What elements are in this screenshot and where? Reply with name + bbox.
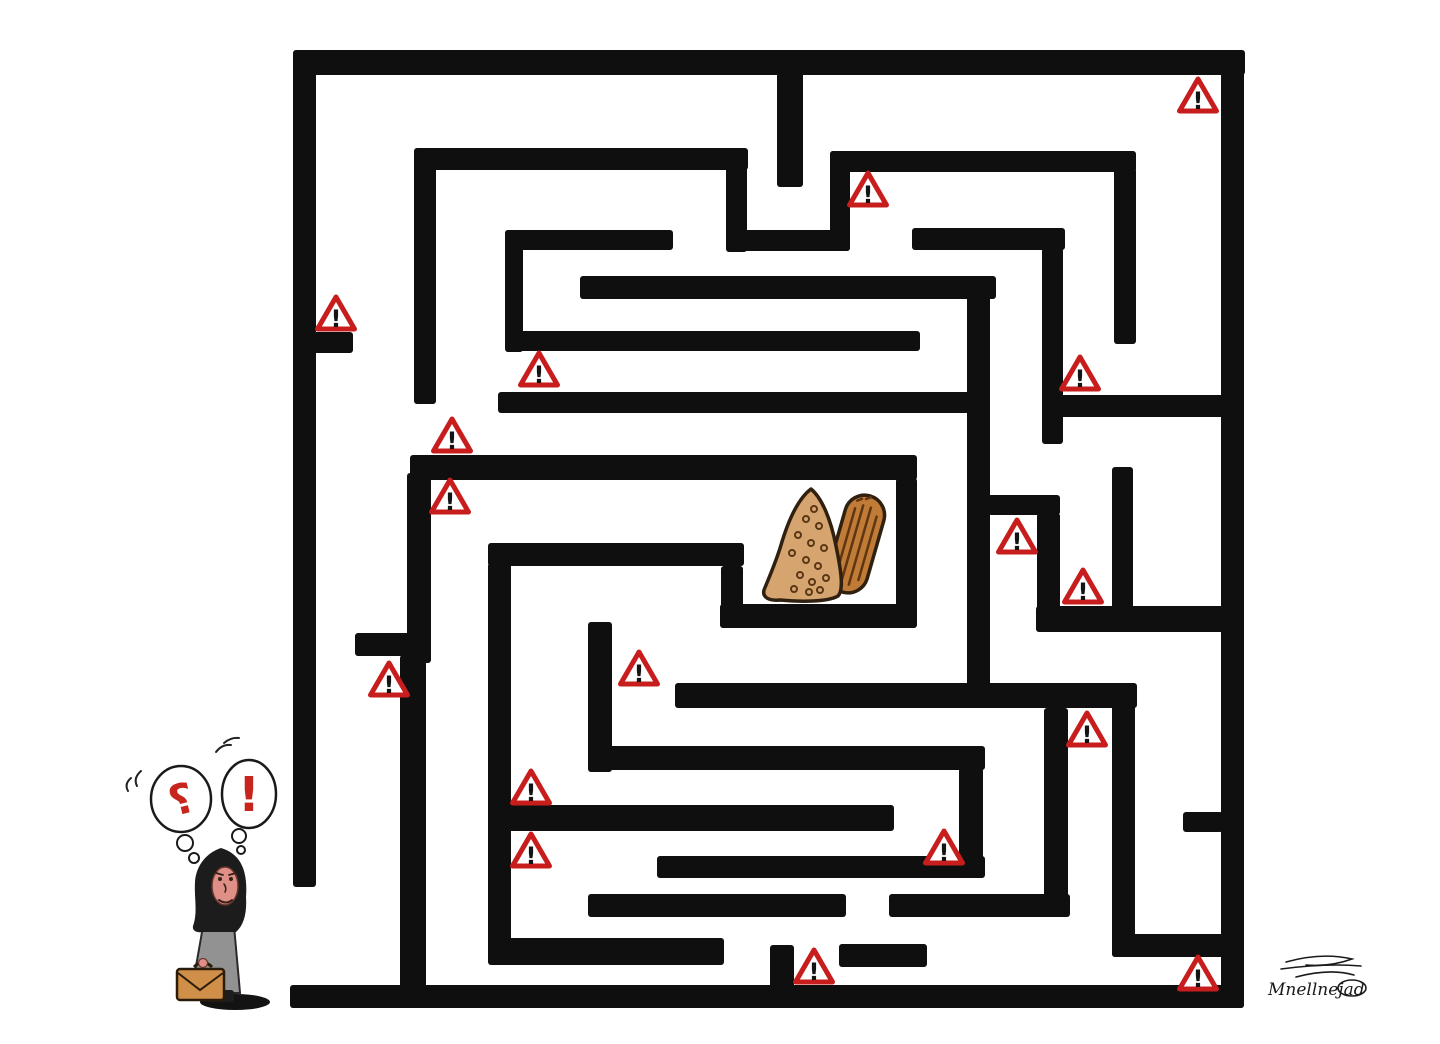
warning-triangle-icon: !	[850, 173, 887, 209]
left-loaf	[764, 489, 842, 601]
overlay-graphics: !!!!!!!!!!!!!!!!!	[0, 0, 1440, 1044]
warning-triangle-icon: !	[371, 663, 408, 699]
svg-text:!: !	[863, 181, 874, 209]
artist-signature: Mnellnejad	[1267, 956, 1366, 1000]
signature-text: Mnellnejad	[1267, 980, 1365, 1000]
bread-illustration	[764, 489, 890, 601]
warning-triangle-icon: !	[318, 297, 355, 333]
thought-bubble-exclamation: !	[222, 760, 276, 828]
warning-triangle-icon: !	[1180, 79, 1217, 115]
svg-text:!: !	[1082, 721, 1093, 749]
warning-triangle-icon: !	[513, 834, 550, 870]
cartoon-scene: !!!!!!!!!!!!!!!!!	[0, 0, 1440, 1044]
thought-bubble-question: ؟	[151, 766, 211, 832]
warning-triangle-icon: !	[796, 950, 833, 986]
warning-triangle-icon: !	[926, 831, 963, 867]
warning-triangles-layer: !!!!!!!!!!!!!!!!!	[318, 79, 1217, 993]
svg-text:!: !	[809, 958, 820, 986]
svg-text:!: !	[447, 427, 458, 455]
warning-triangle-icon: !	[1062, 357, 1099, 393]
warning-triangle-icon: !	[1069, 713, 1106, 749]
warning-triangle-icon: !	[1180, 957, 1217, 993]
svg-text:!: !	[384, 671, 395, 699]
svg-text:!: !	[1012, 528, 1023, 556]
warning-triangle-icon: !	[1065, 570, 1102, 606]
warning-triangle-icon: !	[999, 520, 1036, 556]
svg-text:!: !	[526, 842, 537, 870]
svg-text:!: !	[1078, 578, 1089, 606]
svg-text:!: !	[526, 779, 537, 807]
svg-text:!: !	[634, 660, 645, 688]
svg-text:!: !	[331, 305, 342, 333]
warning-triangle-icon: !	[434, 419, 471, 455]
svg-text:!: !	[1193, 965, 1204, 993]
warning-triangle-icon: !	[621, 652, 658, 688]
svg-text:!: !	[939, 839, 950, 867]
svg-text:!: !	[1075, 365, 1086, 393]
exclamation-glyph: !	[238, 767, 260, 823]
warning-triangle-icon: !	[432, 480, 469, 516]
svg-text:!: !	[1193, 87, 1204, 115]
warning-triangle-icon: !	[521, 353, 558, 389]
svg-text:!: !	[445, 488, 456, 516]
woman-figure: ؟ !	[127, 738, 276, 1010]
svg-text:!: !	[534, 361, 545, 389]
warning-triangle-icon: !	[513, 771, 550, 807]
